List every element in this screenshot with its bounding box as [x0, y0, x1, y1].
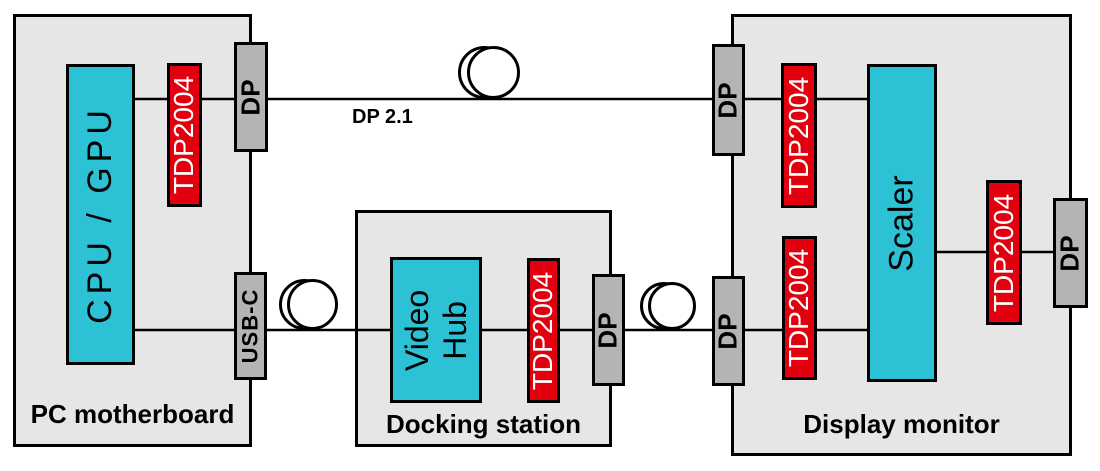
dp-port-pc: DP	[234, 42, 268, 152]
dp-output-port: DP	[1053, 198, 1088, 308]
usb-c-port-label: USB-C	[238, 289, 264, 364]
tdp2004-label: TDP2004	[169, 76, 201, 194]
usb-c-port-pc: USB-C	[234, 272, 267, 380]
dp-port-label: DP	[713, 313, 744, 349]
dp-input-port-top: DP	[712, 44, 745, 156]
dp-port-dock: DP	[592, 274, 625, 386]
cable-coil-icon	[642, 284, 695, 329]
block-diagram: CPU / GPU TDP2004 DP USB-C Video Hub TDP…	[0, 0, 1100, 471]
tdp2004-label: TDP2004	[783, 76, 815, 194]
dp-port-label: DP	[236, 79, 267, 115]
cable-coil-icon	[460, 48, 519, 98]
pc-motherboard-label: PC motherboard	[13, 399, 252, 430]
tdp2004-label: TDP2004	[528, 271, 560, 389]
cable-coil-icon	[281, 281, 337, 329]
tdp2004-redriver-display-output: TDP2004	[986, 180, 1022, 325]
cpu-gpu-chip: CPU / GPU	[66, 64, 135, 365]
tdp2004-redriver-dock: TDP2004	[527, 258, 560, 403]
docking-station-label: Docking station	[355, 409, 612, 440]
dp21-cable-label: DP 2.1	[352, 106, 413, 129]
cpu-gpu-label: CPU / GPU	[81, 105, 120, 324]
dp-port-label: DP	[593, 312, 624, 348]
tdp2004-redriver-pc: TDP2004	[167, 63, 202, 207]
tdp2004-label: TDP2004	[988, 193, 1020, 311]
scaler-chip: Scaler	[867, 64, 937, 382]
dp-port-label: DP	[713, 82, 744, 118]
tdp2004-label: TDP2004	[784, 249, 816, 367]
tdp2004-redriver-display-top: TDP2004	[781, 63, 817, 208]
video-hub-label: Video Hub	[398, 263, 475, 398]
dp-port-label: DP	[1055, 235, 1086, 271]
display-monitor-label: Display monitor	[731, 409, 1072, 440]
dp-input-port-bottom: DP	[712, 276, 745, 386]
scaler-label: Scaler	[883, 175, 922, 271]
tdp2004-redriver-display-bottom: TDP2004	[782, 236, 817, 380]
video-hub-chip: Video Hub	[390, 257, 482, 403]
